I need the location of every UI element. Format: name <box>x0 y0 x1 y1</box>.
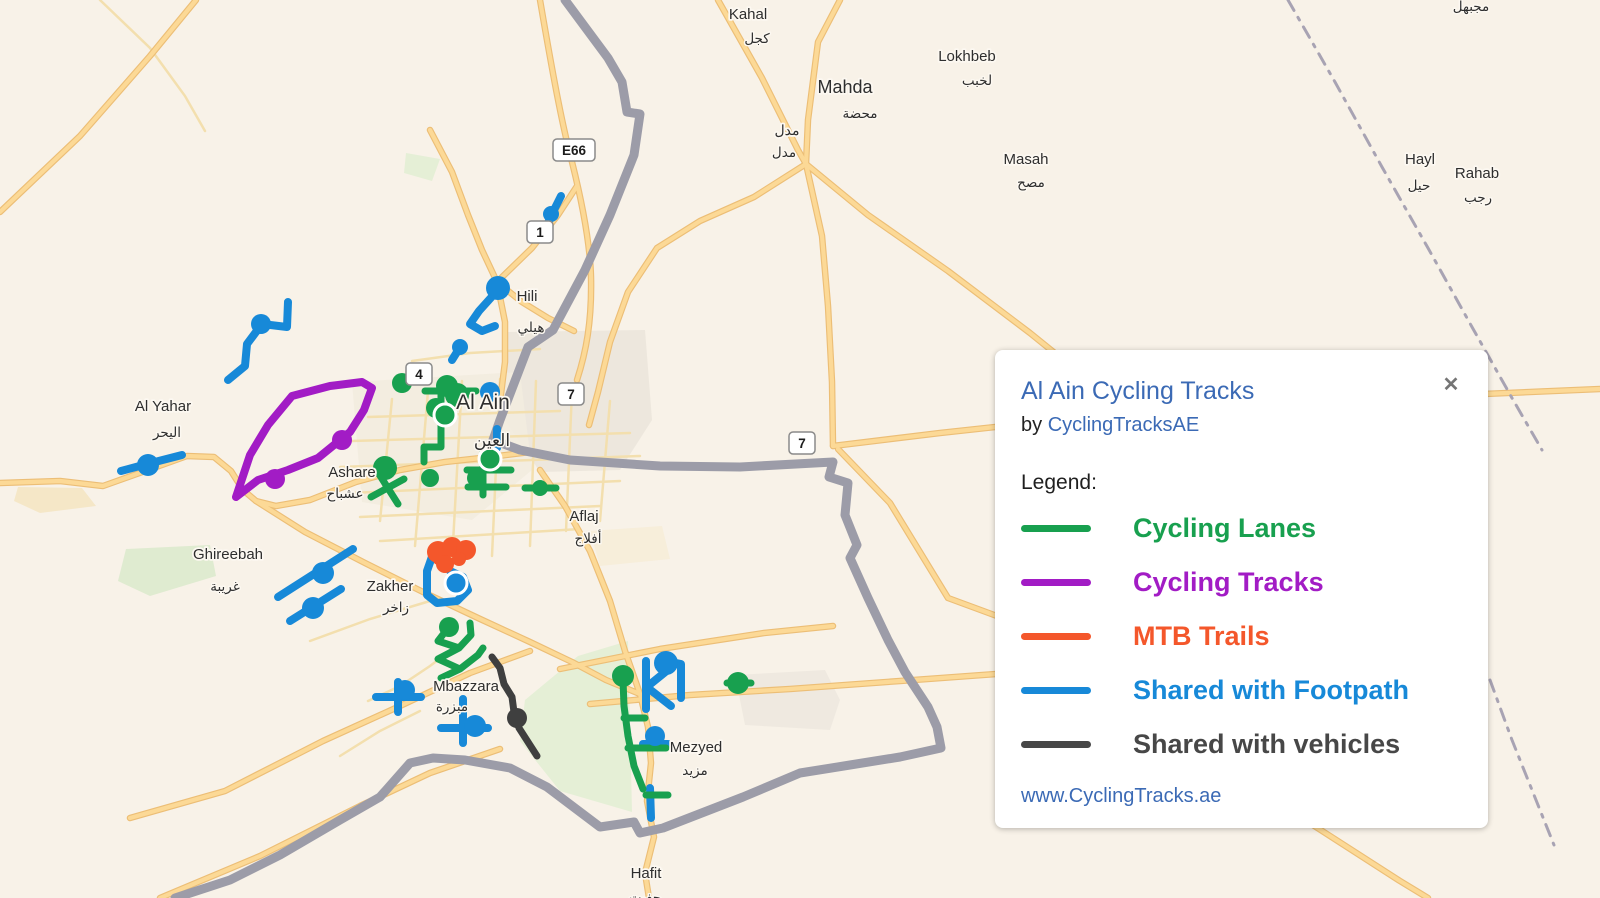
cycling-route-foot[interactable] <box>228 302 288 380</box>
route-marker-foot[interactable] <box>137 454 159 476</box>
legend-swatch <box>1021 741 1091 748</box>
route-marker-lane[interactable] <box>532 480 548 496</box>
road-shield-label: 1 <box>536 225 544 240</box>
place-label-ar: غريبة <box>210 579 240 595</box>
road-shield-label: 4 <box>415 367 423 382</box>
route-marker-foot[interactable] <box>395 680 415 700</box>
website-link[interactable]: www.CyclingTracks.ae <box>1021 785 1221 808</box>
route-marker-foot[interactable] <box>312 562 334 584</box>
place-label-ar: اليحر <box>152 425 181 441</box>
legend-item: Cycling Tracks <box>1021 555 1458 609</box>
place-label: Zakher <box>367 578 414 595</box>
route-marker-veh[interactable] <box>507 708 527 728</box>
place-label-ar: حفيت <box>629 890 662 898</box>
place-label: Hili <box>517 288 538 305</box>
place-label: Lokhbeb <box>938 48 996 65</box>
route-marker-mtb[interactable] <box>452 552 466 566</box>
route-marker-foot[interactable] <box>654 651 678 675</box>
place-label-ar: حيل <box>1408 178 1431 194</box>
place-label-ar: مبزرة <box>436 699 468 715</box>
legend-item-label: Shared with Footpath <box>1133 675 1409 706</box>
route-marker-mtb[interactable] <box>436 555 454 573</box>
place-label-ar: لخبب <box>962 73 992 89</box>
route-marker-foot[interactable] <box>452 339 468 355</box>
legend-item: MTB Trails <box>1021 609 1458 663</box>
road-major <box>718 0 806 164</box>
legend-item-label: Cycling Lanes <box>1133 513 1316 544</box>
legend-swatch <box>1021 525 1091 532</box>
legend-item-label: Shared with vehicles <box>1133 729 1400 760</box>
place-label: Aflaj <box>569 508 598 525</box>
landuse-patch <box>735 670 840 730</box>
place-label: Ashare <box>328 464 376 481</box>
place-label-ar: كجل <box>744 31 770 47</box>
place-label: Masah <box>1003 151 1048 168</box>
route-marker-track[interactable] <box>332 430 352 450</box>
road-major <box>806 164 833 446</box>
route-marker-lane[interactable] <box>421 469 439 487</box>
map-viewport[interactable]: KahalكجلMahdaمحضةمدلمدلLokhbebلخببMasahم… <box>0 0 1600 898</box>
place-label-ar: زاخر <box>382 600 409 616</box>
place-label: مدل <box>774 122 799 138</box>
road-shield-label: 7 <box>798 436 806 451</box>
place-label-ar: رجب <box>1464 190 1492 206</box>
place-label-ar: محضة <box>843 106 878 122</box>
route-marker-foot[interactable] <box>645 726 665 746</box>
legend-swatch <box>1021 579 1091 586</box>
route-marker-foot[interactable] <box>543 206 559 222</box>
route-marker-foot[interactable] <box>445 572 467 594</box>
landuse-patch <box>14 487 96 513</box>
route-marker-lane[interactable] <box>373 456 397 480</box>
byline-prefix: by <box>1021 414 1042 436</box>
place-label-ar: مجبهل <box>1453 0 1489 15</box>
place-label-ar: العين <box>474 431 510 451</box>
road-major-casing <box>540 0 591 380</box>
landuse-patch <box>590 526 670 566</box>
route-marker-lane[interactable] <box>439 617 459 637</box>
route-marker-lane[interactable] <box>612 665 634 687</box>
place-label-ar: مزيد <box>682 763 708 779</box>
route-marker-foot[interactable] <box>486 276 510 300</box>
place-label: Hafit <box>631 865 663 882</box>
place-label: Kahal <box>729 6 767 23</box>
route-marker-lane[interactable] <box>434 404 456 426</box>
place-label: Rahab <box>1455 165 1499 182</box>
road-shield-label: 7 <box>567 387 575 402</box>
route-marker-foot[interactable] <box>251 314 271 334</box>
route-marker-track[interactable] <box>265 469 285 489</box>
legend-swatch <box>1021 633 1091 640</box>
place-label: Ghireebah <box>193 546 263 563</box>
road-major <box>430 130 505 402</box>
route-marker-lane[interactable] <box>727 672 749 694</box>
author-link[interactable]: CyclingTracksAE <box>1048 414 1200 436</box>
place-label: Al Yahar <box>135 398 191 415</box>
place-label: Mbazzara <box>433 678 500 695</box>
place-label: Mezyed <box>670 739 723 756</box>
legend-item: Shared with Footpath <box>1021 663 1458 717</box>
card-byline: by CyclingTracksAE <box>1021 414 1458 437</box>
place-label-ar: هيلي <box>518 320 545 336</box>
road-minor <box>310 601 430 641</box>
road-shield-label: E66 <box>562 143 587 158</box>
legend-label: Legend: <box>1021 471 1458 495</box>
route-marker-foot[interactable] <box>464 715 486 737</box>
legend-card: ✕ Al Ain Cycling Tracks by CyclingTracks… <box>995 350 1488 828</box>
legend-item-label: MTB Trails <box>1133 621 1270 652</box>
place-label: Mahda <box>817 77 873 97</box>
legend-item: Shared with vehicles <box>1021 717 1458 771</box>
legend-items: Cycling LanesCycling TracksMTB TrailsSha… <box>1021 501 1458 771</box>
card-title: Al Ain Cycling Tracks <box>1021 376 1458 406</box>
close-icon[interactable]: ✕ <box>1438 372 1464 398</box>
legend-swatch <box>1021 687 1091 694</box>
place-label: Al Ain <box>456 391 510 414</box>
place-label-ar: مدل <box>772 145 796 161</box>
route-marker-lane[interactable] <box>479 448 501 470</box>
legend-item: Cycling Lanes <box>1021 501 1458 555</box>
legend-item-label: Cycling Tracks <box>1133 567 1324 598</box>
route-marker-lane[interactable] <box>467 469 485 487</box>
place-label: Hayl <box>1405 151 1435 168</box>
place-label-ar: عشباح <box>327 486 364 502</box>
road-major-casing <box>430 130 505 402</box>
admin-boundary-line <box>1490 680 1554 845</box>
road-minor <box>100 0 205 131</box>
landuse-patch <box>404 153 440 181</box>
road-minor <box>380 529 580 541</box>
place-label-ar: مصح <box>1017 175 1045 191</box>
road-major-casing <box>0 0 196 212</box>
route-marker-foot[interactable] <box>302 597 324 619</box>
place-label-ar: أفلاج <box>575 529 602 547</box>
